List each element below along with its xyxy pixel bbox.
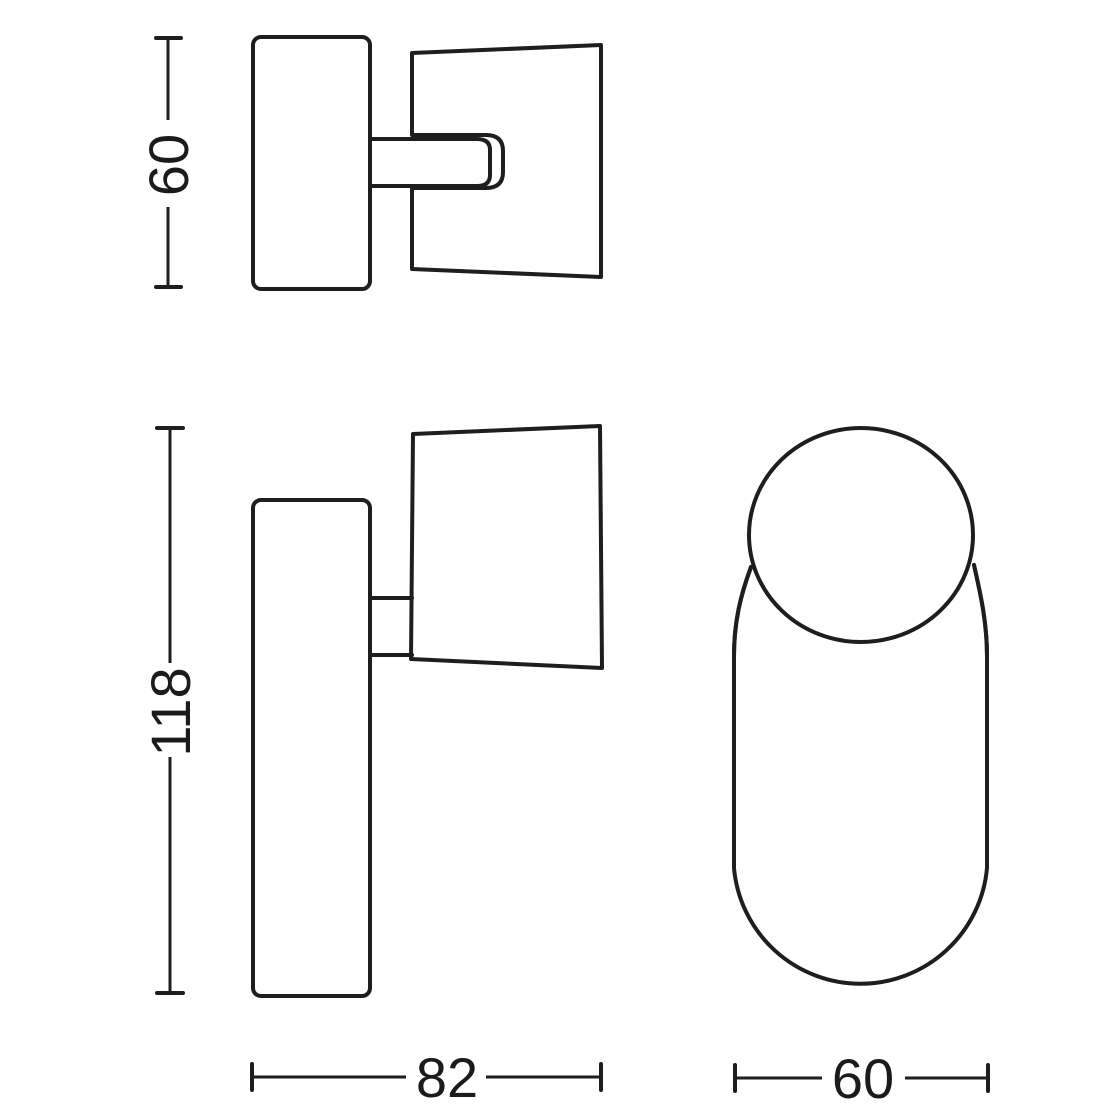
side-view [734, 428, 987, 984]
spotlight-dimension-drawing: 60 118 82 [0, 0, 1120, 1120]
dim-label-side-view-width: 60 [832, 1047, 894, 1110]
front-view-wall-plate-outline [253, 500, 370, 996]
side-view-head-sphere-outline [749, 428, 973, 642]
dimension-front-view-height: 118 [139, 428, 202, 993]
dimension-front-view-width: 82 [252, 1046, 601, 1109]
dim-label-front-view-height: 118 [139, 667, 202, 756]
top-view-arm-outline [370, 139, 490, 186]
dimension-side-view-width: 60 [735, 1047, 988, 1110]
dim-label-top-view-height: 60 [137, 134, 200, 196]
dimension-top-view-height: 60 [137, 38, 200, 287]
front-view-lamp-head-outline [411, 426, 602, 668]
side-view-left-shoulder-line [734, 567, 751, 656]
side-view-right-shoulder-line [974, 565, 987, 656]
dim-label-front-view-width: 82 [416, 1046, 478, 1109]
top-view-wall-plate-outline [253, 37, 370, 289]
top-view [253, 37, 601, 289]
top-view-lamp-head-outline [412, 45, 601, 277]
front-view [253, 426, 602, 996]
technical-drawing-canvas: 60 118 82 [0, 0, 1120, 1120]
